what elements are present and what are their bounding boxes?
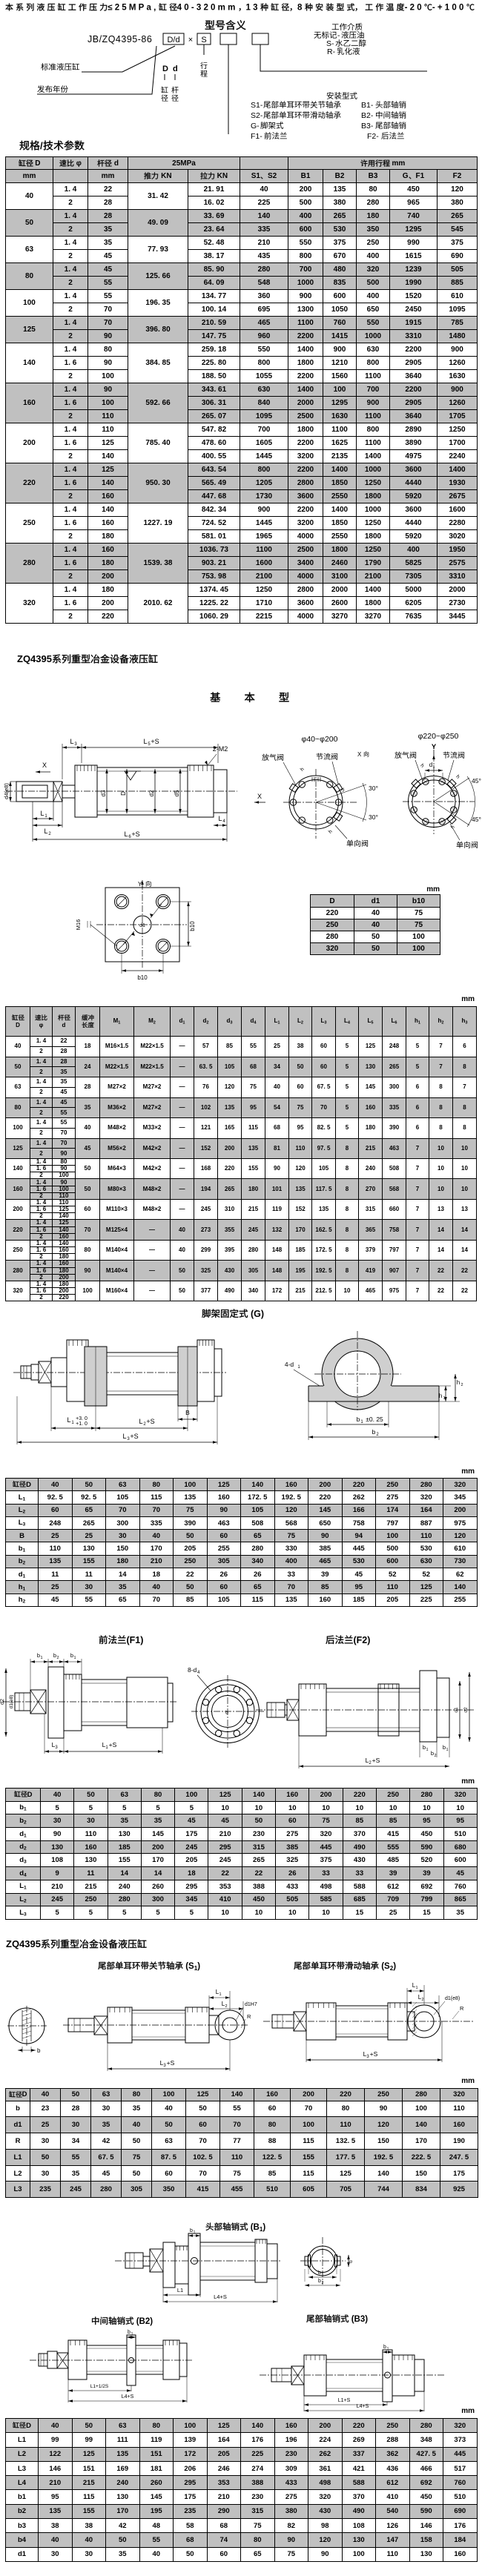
svg-text:Y: Y xyxy=(432,743,437,751)
svg-text:+S: +S xyxy=(167,2059,175,2067)
svg-text:b: b xyxy=(383,2345,386,2350)
svg-text:b: b xyxy=(372,1428,376,1436)
svg-text:b: b xyxy=(423,1744,426,1751)
svg-text:b: b xyxy=(53,1652,56,1659)
svg-text:L1+1/2S: L1+1/2S xyxy=(90,2384,109,2389)
svg-text:h: h xyxy=(457,1379,460,1386)
svg-text:φ220~φ250: φ220~φ250 xyxy=(418,732,459,741)
svg-text:d4(e8): d4(e8) xyxy=(3,783,10,799)
svg-text:φ40~φ200: φ40~φ200 xyxy=(302,735,338,744)
svg-text:D: D xyxy=(162,65,168,73)
svg-text:F1-: F1- xyxy=(251,132,263,141)
svg-text:+S: +S xyxy=(370,2050,378,2058)
svg-text:1: 1 xyxy=(73,1656,76,1660)
svg-text:+S: +S xyxy=(372,1757,380,1764)
svg-text:S2-: S2- xyxy=(251,111,263,120)
svg-text:d2: d2 xyxy=(0,1699,5,1705)
svg-text:G-: G- xyxy=(251,122,260,131)
svg-text:+S: +S xyxy=(130,1433,138,1440)
svg-text:30°: 30° xyxy=(369,785,378,792)
svg-text:1: 1 xyxy=(219,1992,221,1997)
svg-text:B2-: B2- xyxy=(361,111,374,120)
svg-text:1: 1 xyxy=(131,2332,133,2336)
svg-text:b: b xyxy=(443,1744,446,1751)
svg-text:2: 2 xyxy=(322,2281,324,2285)
svg-text:h: h xyxy=(439,1393,442,1399)
svg-text:1: 1 xyxy=(432,765,435,770)
svg-text:4-d: 4-d xyxy=(285,1361,294,1368)
svg-text:S1-: S1- xyxy=(251,101,263,110)
svg-text:h: h xyxy=(455,774,460,780)
svg-text:b10: b10 xyxy=(189,921,196,931)
svg-text:L4+S: L4+S xyxy=(214,2293,227,2300)
svg-text:1: 1 xyxy=(71,1421,74,1425)
svg-text:1: 1 xyxy=(297,1365,300,1370)
svg-text:d2: d2 xyxy=(463,1707,469,1713)
svg-text:d: d xyxy=(224,1710,230,1716)
svg-text:2: 2 xyxy=(434,1754,436,1758)
svg-text:d3: d3 xyxy=(100,790,107,796)
svg-text:d: d xyxy=(349,2260,354,2263)
svg-text:1: 1 xyxy=(443,1396,445,1401)
svg-text:d5: d5 xyxy=(174,790,180,796)
svg-text:b: b xyxy=(318,2270,321,2276)
svg-text:L: L xyxy=(67,1416,70,1424)
svg-text:D/d: D/d xyxy=(167,36,179,44)
svg-text:X: X xyxy=(357,751,362,758)
svg-text:3: 3 xyxy=(74,742,77,747)
svg-text:b10: b10 xyxy=(137,974,148,981)
svg-text:S: S xyxy=(201,36,206,44)
svg-text:3: 3 xyxy=(55,1746,58,1750)
svg-text:1: 1 xyxy=(322,2273,324,2277)
svg-text:d1: d1 xyxy=(139,923,145,928)
svg-text:L4+S: L4+S xyxy=(122,2394,134,2400)
svg-text:1: 1 xyxy=(387,2347,389,2351)
svg-text:+3. 0: +3. 0 xyxy=(76,1416,88,1421)
svg-text:45°: 45° xyxy=(472,816,481,823)
svg-text:1: 1 xyxy=(44,814,47,819)
svg-text:1: 1 xyxy=(360,1420,363,1424)
svg-text:1: 1 xyxy=(415,1986,417,1990)
svg-text:d: d xyxy=(173,65,178,73)
svg-text:2: 2 xyxy=(421,1998,423,2002)
svg-text:d1(e8): d1(e8) xyxy=(445,1996,460,2001)
svg-text:R-: R- xyxy=(327,47,336,56)
svg-text:h: h xyxy=(300,767,306,773)
svg-text:4: 4 xyxy=(222,819,225,824)
svg-text:b: b xyxy=(128,2330,131,2335)
svg-text:+1. 0: +1. 0 xyxy=(76,1421,88,1427)
svg-text:2-M2: 2-M2 xyxy=(213,745,228,753)
svg-text:b: b xyxy=(37,2047,41,2054)
svg-text:d1H7: d1H7 xyxy=(245,2002,257,2007)
svg-text:h: h xyxy=(450,825,456,830)
svg-text:2: 2 xyxy=(376,1433,379,1437)
svg-text:b: b xyxy=(357,1416,360,1423)
svg-text:2: 2 xyxy=(225,2004,227,2009)
svg-text:L1: L1 xyxy=(177,2287,183,2293)
svg-text:b: b xyxy=(318,2279,321,2284)
svg-text:h: h xyxy=(419,763,425,769)
svg-text:X: X xyxy=(257,793,262,800)
svg-text:±0. 25: ±0. 25 xyxy=(366,1416,383,1423)
svg-text:L4+S: L4+S xyxy=(357,2404,369,2409)
svg-text:X: X xyxy=(42,762,47,769)
svg-text:-: - xyxy=(337,31,340,40)
svg-text:d1: d1 xyxy=(454,1707,459,1713)
svg-text:+S: +S xyxy=(109,1741,117,1748)
svg-text:1: 1 xyxy=(194,2230,196,2235)
svg-text:JB/ZQ4395-86: JB/ZQ4395-86 xyxy=(88,34,152,44)
svg-text:b: b xyxy=(37,1652,40,1659)
svg-text:B1-: B1- xyxy=(361,101,374,110)
svg-text:×: × xyxy=(188,36,193,44)
svg-text:L: L xyxy=(70,738,73,745)
svg-text:L: L xyxy=(44,828,47,835)
svg-text:45°: 45° xyxy=(472,777,481,785)
svg-text:4: 4 xyxy=(197,1671,200,1675)
svg-text:d1(e8): d1(e8) xyxy=(9,1695,14,1709)
svg-text:F2-: F2- xyxy=(367,132,379,141)
svg-text:b: b xyxy=(190,2228,193,2233)
svg-text:1: 1 xyxy=(446,1748,448,1752)
svg-text:R: R xyxy=(247,2013,251,2020)
svg-text:2: 2 xyxy=(56,1656,59,1660)
svg-text:L: L xyxy=(218,815,222,822)
svg-text:B: B xyxy=(185,1409,190,1416)
svg-text:+S: +S xyxy=(131,830,139,838)
svg-text:L1+S: L1+S xyxy=(338,2398,351,2403)
svg-text:L: L xyxy=(122,1433,126,1440)
svg-text:d2: d2 xyxy=(148,790,155,796)
svg-text:L: L xyxy=(143,738,147,745)
svg-text:8-d: 8-d xyxy=(188,1666,197,1674)
svg-text:R: R xyxy=(460,2005,464,2012)
svg-text:2: 2 xyxy=(460,1383,463,1387)
svg-text:L: L xyxy=(139,1418,142,1425)
svg-text:+S: +S xyxy=(151,738,159,745)
svg-text:D: D xyxy=(120,791,127,796)
svg-text:h: h xyxy=(328,829,334,835)
svg-text:1: 1 xyxy=(40,1656,42,1660)
svg-text:L: L xyxy=(40,810,44,817)
svg-text:b: b xyxy=(70,1652,73,1659)
svg-text:b: b xyxy=(431,1750,434,1757)
svg-text:30°: 30° xyxy=(369,813,378,821)
svg-text:B3-: B3- xyxy=(361,122,374,131)
svg-text:M16: M16 xyxy=(75,919,82,931)
svg-text:1: 1 xyxy=(426,1748,428,1752)
svg-text:L: L xyxy=(124,830,128,838)
svg-text:+S: +S xyxy=(146,1418,154,1425)
svg-text:2: 2 xyxy=(48,832,51,836)
